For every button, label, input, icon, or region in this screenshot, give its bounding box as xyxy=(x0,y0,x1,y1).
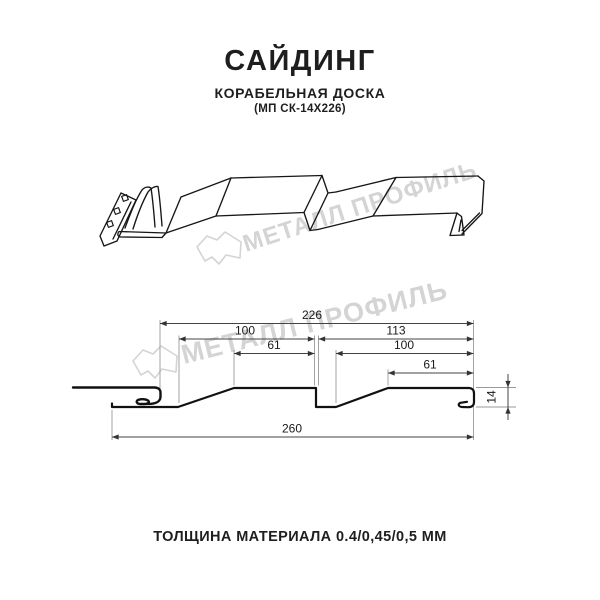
lock-hook xyxy=(73,388,161,405)
dim-label-wave2-flat: 61 xyxy=(423,358,437,372)
nail-strip xyxy=(100,193,136,246)
dim-label-total: 260 xyxy=(282,422,302,436)
profile-outline xyxy=(73,388,474,408)
extension-lines xyxy=(112,320,516,440)
dim-label-wave2-width: 100 xyxy=(394,338,414,352)
dimension-lines xyxy=(112,324,508,438)
technical-drawing: МЕТАЛЛ ПРОФИЛЬ МЕТАЛЛ ПРОФИЛЬ xyxy=(0,0,600,600)
siding-diagram-page: САЙДИНГ КОРАБЕЛЬНАЯ ДОСКА (МП СК-14Х226)… xyxy=(0,0,600,600)
dim-label-wave1-width: 100 xyxy=(235,324,255,338)
dim-label-overall: 226 xyxy=(302,308,322,322)
dim-label-wave2-full: 113 xyxy=(386,324,405,338)
dim-label-wave1-flat: 61 xyxy=(267,338,281,352)
thickness-note: ТОЛЩИНА МАТЕРИАЛА 0.4/0,45/0,5 ММ xyxy=(0,529,600,545)
house-logo-icon xyxy=(197,232,241,264)
dim-label-height: 14 xyxy=(485,390,499,404)
panel-profile xyxy=(112,388,474,407)
watermark-brand-text: МЕТАЛЛ ПРОФИЛЬ xyxy=(240,156,481,257)
watermark-upper: МЕТАЛЛ ПРОФИЛЬ xyxy=(197,156,480,264)
house-logo-icon xyxy=(133,346,177,378)
